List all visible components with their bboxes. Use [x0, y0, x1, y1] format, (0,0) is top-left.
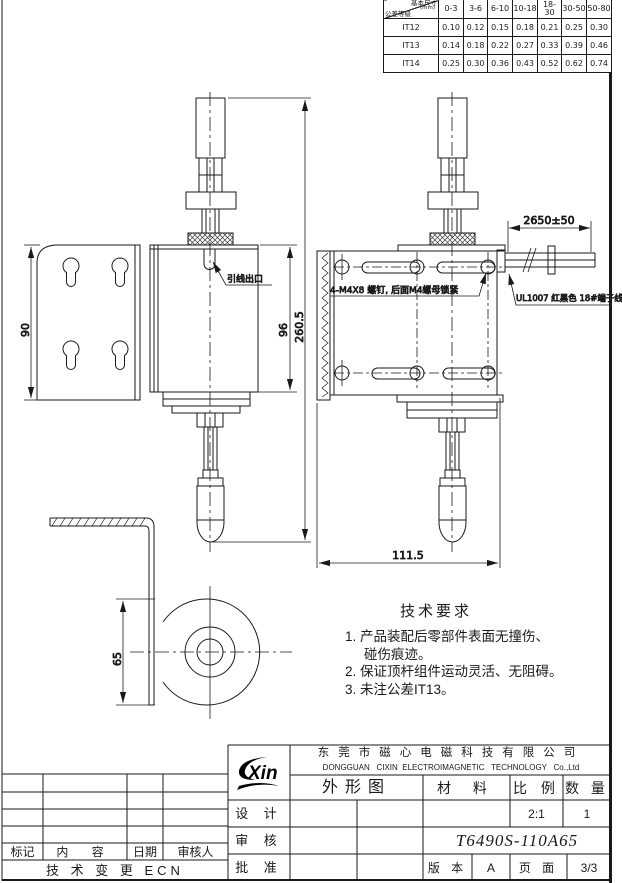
dim-bracket-height: 90 [19, 323, 32, 337]
page-value: 3/3 [568, 855, 610, 880]
knurled-cap [188, 233, 233, 245]
left-side-view [37, 92, 258, 552]
tolerance-row: IT14 0.25 0.30 0.36 0.43 0.52 0.62 0.74 [384, 55, 612, 73]
scale-value: 2:1 [511, 801, 562, 826]
callout-screws: 4-M4X8 螺钉, 后面M4螺母锁紧 [330, 284, 458, 296]
drawing-type: 外形图 [291, 776, 422, 799]
size-range: 50-80 [587, 0, 612, 19]
approve-label: 批 准 [229, 855, 289, 880]
keyhole-slot [63, 341, 79, 370]
part-number: T6490S-110A65 [424, 828, 610, 853]
size-range: 3-6 [464, 0, 488, 19]
tech-requirements: 技术要求 1. 产品装配后零部件表面无撞伤、 碰伤痕迹。 2. 保证顶杆组件运动… [345, 600, 617, 698]
tolerance-corner-cell: 基本尺寸 (mm) 公差等级 [384, 0, 439, 19]
ecn-label: 技 术 变 更 ECN [3, 861, 227, 879]
corner-grade: 公差等级 [385, 11, 411, 18]
dim-overall-height: 260.5 [293, 311, 306, 343]
corner-unit: (mm) [420, 6, 435, 12]
size-range: 10-18 [513, 0, 538, 19]
dim-body-height: 96 [277, 323, 290, 337]
grade-label: IT14 [384, 55, 439, 73]
dim-foot-height: 65 [111, 652, 124, 666]
tech-requirement-item: 2. 保证顶杆组件运动灵活、无阻碍。 [345, 663, 617, 681]
section-hatch [322, 253, 328, 397]
mount-slot [443, 368, 495, 379]
logo-text: Xin [247, 763, 278, 784]
qty-label: 数 量 [564, 776, 610, 799]
grade-label: IT12 [384, 19, 439, 37]
revision-header-mark: 标记 [3, 844, 42, 859]
page-label: 页 面 [511, 855, 566, 880]
review-label: 审 核 [229, 828, 289, 853]
qty-value: 1 [564, 801, 610, 826]
keyhole-slot [63, 258, 79, 287]
dim-wire-length: 2650±50 [523, 214, 574, 227]
mounting-bracket [37, 245, 140, 400]
size-range: 0-3 [439, 0, 464, 19]
tolerance-table: 基本尺寸 (mm) 公差等级 0-3 3-6 6-10 10-18 18-30 … [383, 0, 612, 73]
company-logo: Xin [231, 750, 287, 796]
mount-slot [372, 368, 420, 379]
drawing-sheet: 90 96 260.5 2650±50 111.5 65 引线出口 [0, 0, 622, 883]
logo-underline [237, 783, 279, 790]
revision-header-content: 内 容 [44, 844, 126, 859]
keyhole-slot [112, 341, 128, 370]
tech-requirement-item: 3. 未注公差IT13。 [345, 681, 617, 699]
lead-wire [497, 246, 595, 274]
version-value: A [473, 855, 509, 880]
tech-requirement-item: 碰伤痕迹。 [345, 646, 617, 664]
keyhole-slot [112, 258, 128, 287]
callout-wire-exit: 引线出口 [227, 273, 263, 285]
foot-bracket-view [50, 518, 292, 719]
revision-header-reviewer: 审核人 [164, 844, 227, 859]
tech-requirement-item: 1. 产品装配后零部件表面无撞伤、 [345, 628, 617, 646]
dim-body-width: 111.5 [392, 549, 424, 562]
size-range: 18-30 [538, 0, 562, 19]
tolerance-row: IT12 0.10 0.12 0.15 0.18 0.21 0.25 0.30 [384, 19, 612, 37]
mount-slot [437, 262, 495, 273]
design-label: 设 计 [229, 801, 289, 826]
revision-header-date: 日期 [128, 844, 162, 859]
company-name-en: DONGGUAN CIXIN ELECTROIMAGNETIC TECHNOLO… [295, 762, 607, 773]
tolerance-row: IT13 0.14 0.18 0.22 0.27 0.33 0.39 0.46 [384, 37, 612, 55]
size-range: 30-50 [562, 0, 587, 19]
wire-exit-slot [204, 249, 215, 270]
front-view [317, 92, 595, 552]
tech-requirements-title: 技术要求 [400, 600, 617, 621]
material-label: 材 料 [424, 776, 509, 799]
version-label: 版 本 [424, 855, 471, 880]
callouts: 引线出口 4-M4X8 螺钉, 后面M4螺母锁紧 UL1007 红黑色 18#端… [213, 262, 622, 305]
grade-label: IT13 [384, 37, 439, 55]
scale-label: 比 例 [511, 776, 562, 799]
company-name-cn: 东莞市磁心电磁科技有限公司 [295, 747, 607, 761]
knurled-cap [430, 233, 475, 245]
size-range: 6-10 [488, 0, 513, 19]
callout-wire-spec: UL1007 红黑色 18#端子线 [516, 293, 622, 304]
flange-hatch [52, 518, 145, 526]
